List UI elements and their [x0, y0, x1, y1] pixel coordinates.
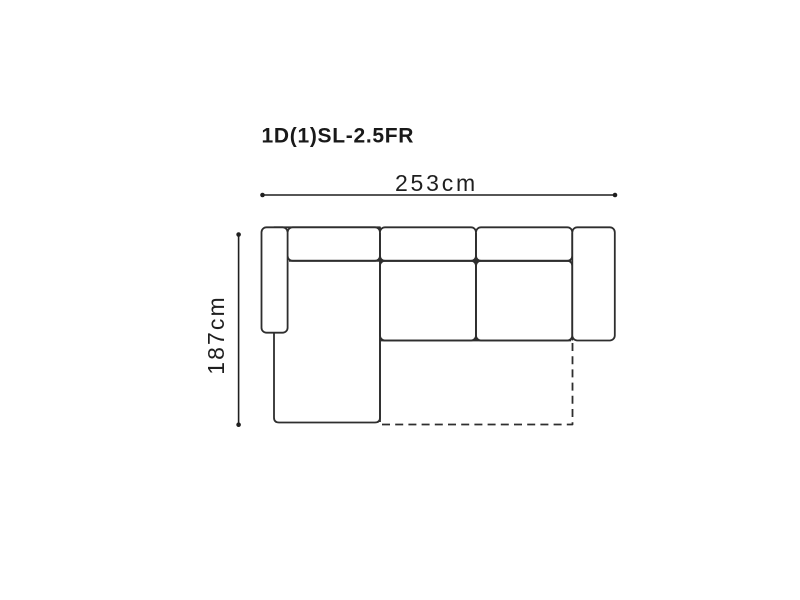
- svg-text:253cm: 253cm: [395, 170, 478, 196]
- svg-text:1D(1)SL-2.5FR: 1D(1)SL-2.5FR: [262, 124, 415, 147]
- svg-text:187cm: 187cm: [203, 295, 229, 375]
